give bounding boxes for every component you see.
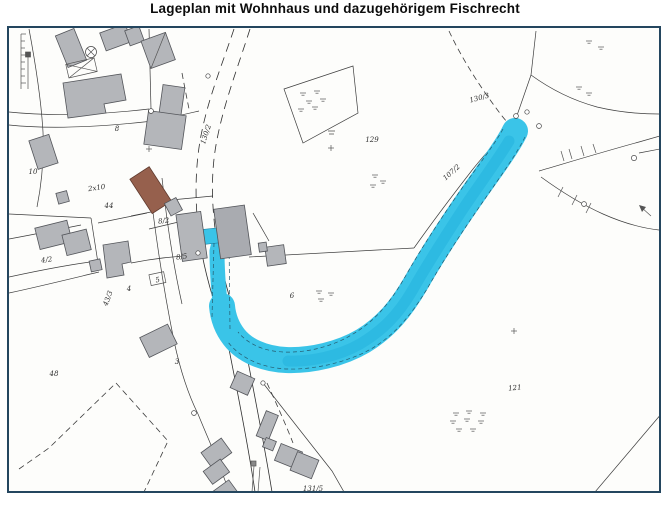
buildings <box>29 28 319 491</box>
parcel-label: 10 <box>29 168 38 176</box>
parcel-label: 8/5 <box>176 252 189 262</box>
page-title: Lageplan mit Wohnhaus und dazugehörigem … <box>0 1 670 16</box>
parcel-label: 131/5 <box>303 485 324 491</box>
direction-arrow-icon <box>639 205 651 216</box>
parcel-label: 107/2 <box>441 162 462 182</box>
parcel-label: 6 <box>290 292 295 300</box>
parcel-label: 4/2 <box>40 255 54 265</box>
building-with-ridge <box>141 32 175 68</box>
parcel-label: 4 <box>126 285 131 293</box>
parcel-label: 8/2 <box>158 216 171 226</box>
parcel-label: 130/3 <box>469 91 491 104</box>
lageplan-page: Lageplan mit Wohnhaus und dazugehörigem … <box>0 0 670 506</box>
road-network <box>196 29 272 491</box>
site-plan-map: 1082x10448/28/54/24543/34836130/2129130/… <box>7 26 661 493</box>
parcel-label: 2x10 <box>87 183 107 194</box>
parcel-label: 121 <box>508 383 522 392</box>
wohnhaus-right-building <box>214 205 252 259</box>
parcel-label: 44 <box>104 202 114 210</box>
parcel-label: 43/3 <box>101 289 114 308</box>
site-plan-svg: 1082x10448/28/54/24543/34836130/2129130/… <box>9 28 659 491</box>
parcel-label: 3 <box>175 358 180 366</box>
circle-cross-symbol <box>86 47 97 58</box>
parcel-label: 48 <box>49 370 59 378</box>
parcel-label: 129 <box>365 136 379 144</box>
parcel-label: 5 <box>155 276 162 285</box>
embankment-hatch-marks <box>558 144 596 213</box>
parcel-label: 130/2 <box>199 123 213 145</box>
parcel-labels: 1082x10448/28/54/24543/34836130/2129130/… <box>29 91 522 491</box>
parcel-label: 8 <box>115 125 120 133</box>
survey-scale-marks <box>21 34 31 89</box>
